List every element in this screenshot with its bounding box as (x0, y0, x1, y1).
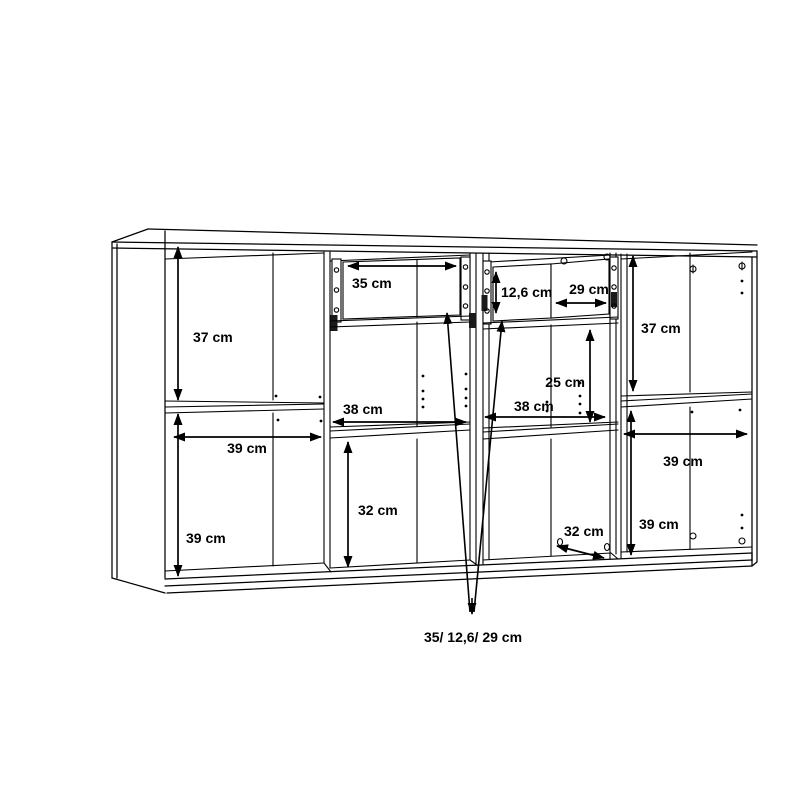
diagram-canvas: 37 cm 39 cm 39 cm 35 cm 38 cm 32 cm 12,6… (0, 0, 800, 800)
dimension-label: 37 cm (641, 320, 681, 336)
dimension-s4-width: 39 cm (624, 434, 747, 469)
dimension-label: 37 cm (193, 329, 233, 345)
dimension-s1-upper-height: 37 cm (178, 247, 233, 400)
dimension-label: 38 cm (514, 398, 554, 414)
dimension-label: 32 cm (564, 523, 604, 539)
drawer-sizes-callout: 35/ 12,6/ 29 cm (424, 313, 522, 645)
dimension-label: 32 cm (358, 502, 398, 518)
furniture-dimension-diagram: 37 cm 39 cm 39 cm 35 cm 38 cm 32 cm 12,6… (0, 0, 800, 800)
dimension-label: 25 cm (545, 374, 585, 390)
shelves (165, 392, 752, 439)
dimension-label: 39 cm (227, 440, 267, 456)
dimension-label: 12,6 cm (501, 284, 552, 300)
dimension-s2-lower-height: 32 cm (348, 442, 398, 567)
dimension-s1-width: 39 cm (174, 437, 321, 456)
dimension-label: 29 cm (569, 281, 609, 297)
dimension-s4-upper-height: 37 cm (633, 256, 681, 391)
drawer-left (330, 257, 477, 331)
dimension-label: 39 cm (186, 530, 226, 546)
dimension-label: 35 cm (352, 275, 392, 291)
dimension-s2-width: 38 cm (333, 401, 466, 422)
dimension-s3-width: 38 cm (485, 398, 605, 417)
callout-label: 35/ 12,6/ 29 cm (424, 629, 522, 645)
dimension-label: 38 cm (343, 401, 383, 417)
cabinet-floor-edges (165, 547, 752, 572)
dimension-s1-lower-height: 39 cm (178, 414, 226, 576)
dimension-depth: 32 cm (557, 523, 604, 558)
dimension-label: 39 cm (639, 516, 679, 532)
dimension-label: 39 cm (663, 453, 703, 469)
dimension-s4-lower-height: 39 cm (631, 411, 679, 555)
